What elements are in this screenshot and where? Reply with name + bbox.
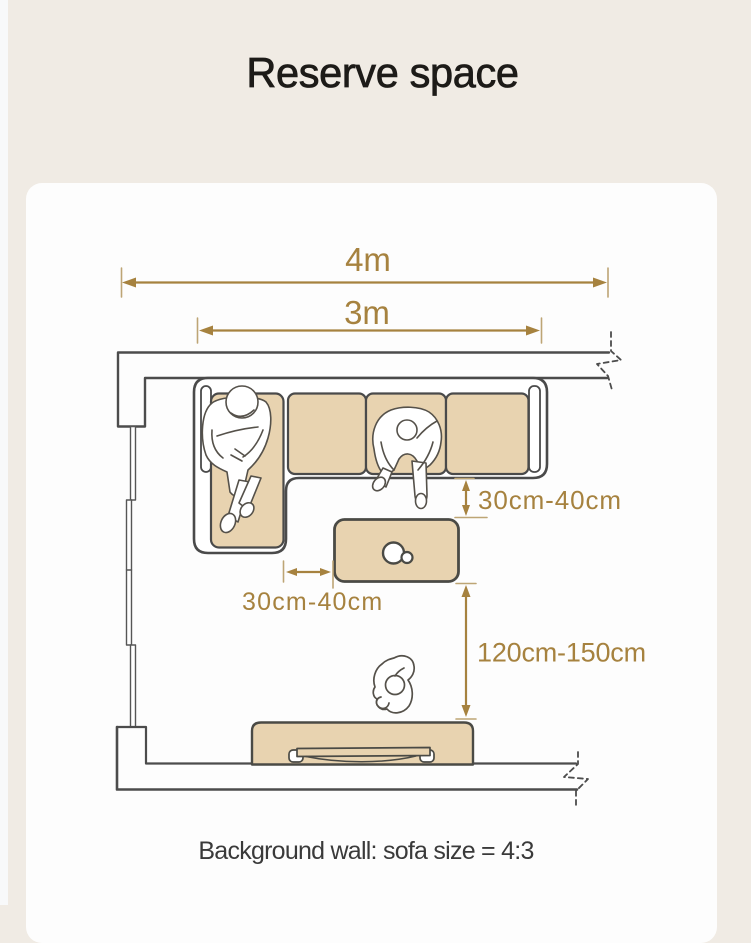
svg-text:4m: 4m <box>345 241 391 278</box>
svg-text:3m: 3m <box>344 294 390 331</box>
svg-text:120cm-150cm: 120cm-150cm <box>477 638 646 668</box>
svg-text:30cm-40cm: 30cm-40cm <box>478 485 622 515</box>
svg-text:30cm-40cm: 30cm-40cm <box>242 588 383 616</box>
